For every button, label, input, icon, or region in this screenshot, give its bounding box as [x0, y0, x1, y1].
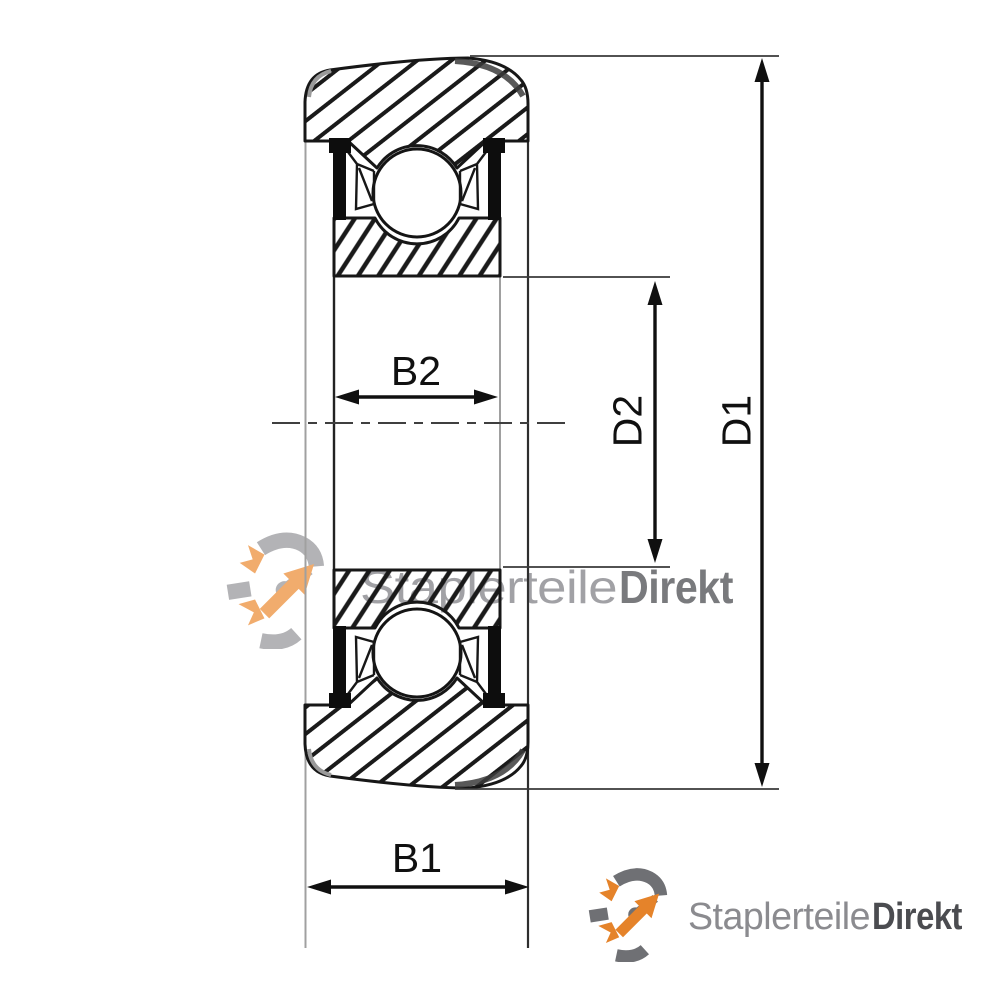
seal-top-right	[483, 138, 505, 220]
brand-logo: StaplerteileDirekt	[590, 874, 963, 956]
bottom-section	[305, 570, 528, 788]
seal-bottom-right	[483, 626, 505, 708]
ball-bottom	[373, 609, 461, 697]
arrowhead	[755, 58, 770, 82]
brand-logo-text: StaplerteileDirekt	[688, 896, 963, 938]
watermark-text-bold: Direkt	[619, 561, 733, 613]
top-section	[305, 58, 528, 276]
brand-logo-text-bold: Direkt	[872, 896, 963, 938]
dimension-d1: D1	[713, 58, 769, 787]
dimension-b2: B2	[335, 348, 498, 405]
dimension-label-b2: B2	[391, 348, 441, 394]
seal-bottom-left	[329, 626, 351, 708]
dimension-label-d2: D2	[604, 395, 650, 447]
arrowhead	[307, 880, 331, 895]
arrowhead	[335, 390, 359, 405]
arrowhead	[648, 281, 663, 305]
brand-logo-text-regular: Staplerteile	[688, 896, 870, 938]
bearing-drawing	[272, 58, 566, 948]
gear-arrow-icon	[590, 874, 661, 956]
ball-top	[373, 149, 461, 237]
dimension-label-b1: B1	[392, 835, 442, 881]
seal-top-left	[329, 138, 351, 220]
arrowhead	[648, 539, 663, 563]
bearing-diagram: StaplerteileDirekt	[0, 0, 1000, 1000]
dimension-d2: D2	[604, 281, 662, 563]
arrowhead	[474, 390, 498, 405]
gear-arrow-icon	[228, 540, 317, 642]
arrowhead	[755, 763, 770, 787]
arrowhead	[505, 880, 529, 895]
dimension-b1: B1	[307, 835, 529, 895]
dimension-label-d1: D1	[713, 395, 759, 447]
